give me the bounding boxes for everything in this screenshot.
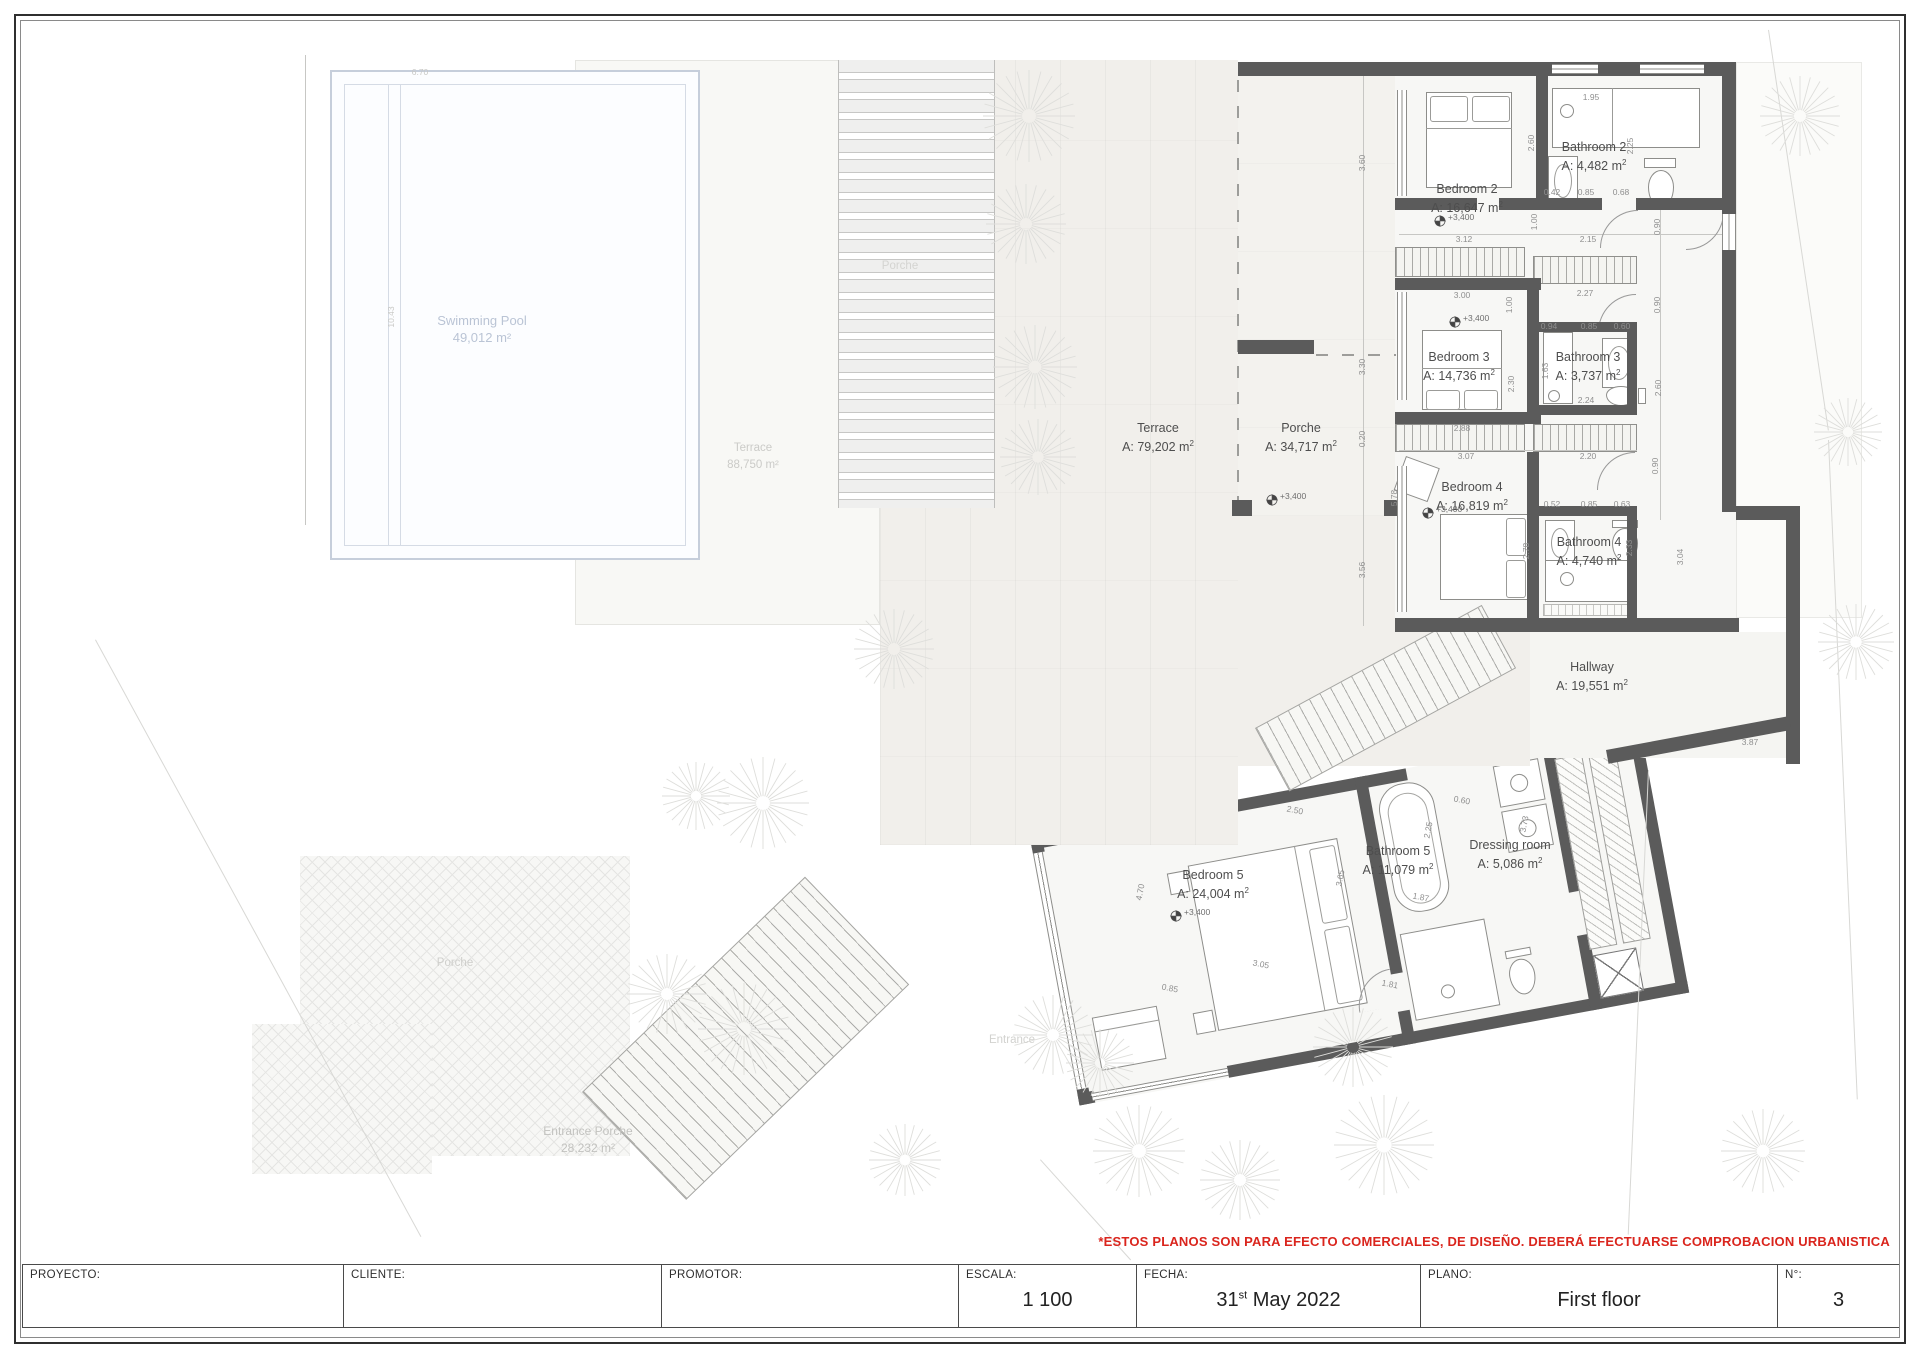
dimension-label: 2.60: [1526, 135, 1536, 152]
level-marker: +3,400: [1422, 506, 1434, 524]
fecha-label: FECHA:: [1144, 1269, 1188, 1281]
titleblock-cliente: CLIENTE:: [344, 1265, 662, 1327]
room-label-bedroom-3: Bedroom 3A: 14,736 m2: [1423, 349, 1495, 384]
titleblock-numero: N°: 3: [1778, 1265, 1899, 1327]
dimension-label: 0.90: [1650, 458, 1660, 475]
titleblock-plano: PLANO: First floor: [1421, 1265, 1778, 1327]
dimension-label: 3.05: [1252, 958, 1270, 971]
dimension-label: 2.25: [1422, 821, 1435, 839]
area-label-terrace: Terrace88,750 m²: [727, 440, 779, 474]
dimension-label: 2.78: [1521, 543, 1531, 560]
labels-layer: Bedroom 2A: 16,647 m2Bathroom 2A: 4,482 …: [0, 0, 1920, 1358]
dimension-label: 0.52: [1544, 499, 1561, 509]
dimension-label: 2.20: [1580, 451, 1597, 461]
dimension-label: 3.56: [1357, 562, 1367, 579]
room-label-bedroom-5: Bedroom 5A: 24,004 m2: [1177, 867, 1249, 902]
dimension-label: 2.27: [1577, 288, 1594, 298]
level-marker: +3,400: [1449, 315, 1461, 333]
dimension-label: 0.60: [1614, 321, 1631, 331]
dimension-label: 0.94: [1541, 321, 1558, 331]
dimension-label: 0.90: [1652, 297, 1662, 314]
dimension-label: 2.15: [1580, 234, 1597, 244]
room-label-hallway: HallwayA: 19,551 m2: [1556, 659, 1628, 694]
proyecto-label: PROYECTO:: [30, 1269, 100, 1281]
room-label-terrace: TerraceA: 79,202 m2: [1122, 420, 1194, 455]
dimension-label: 2.30: [1506, 376, 1516, 393]
dimension-label: 0.85: [1578, 187, 1595, 197]
plano-label: PLANO:: [1428, 1269, 1472, 1281]
dimension-label: 3.30: [1357, 359, 1367, 376]
dimension-label: 1.95: [1583, 92, 1600, 102]
dimension-label: 3.87: [1742, 737, 1759, 747]
cliente-label: CLIENTE:: [351, 1269, 405, 1281]
dimension-label: 1.81: [1381, 978, 1399, 991]
dimension-label: 0.85: [1581, 321, 1598, 331]
titleblock-escala: ESCALA: 1 100: [959, 1265, 1137, 1327]
area-label-porche: Porche: [882, 258, 918, 275]
room-label-bathroom-3: Bathroom 3A: 3,737 m2: [1556, 349, 1621, 384]
dimension-label: 3.73: [1518, 815, 1531, 833]
titleblock-fecha: FECHA: 31st May 2022: [1137, 1265, 1421, 1327]
dimension-label: 0.63: [1614, 499, 1631, 509]
dimension-label: 3.04: [1675, 549, 1685, 566]
area-label-entrance: Entrance: [989, 1032, 1035, 1049]
dimension-label: 0.20: [1357, 431, 1367, 448]
dimension-label: 2.50: [1286, 804, 1304, 817]
room-label-porche: PorcheA: 34,717 m2: [1265, 420, 1337, 455]
dimension-label: 3.12: [1456, 234, 1473, 244]
dimension-label: 1.00: [1529, 214, 1539, 231]
promotor-label: PROMOTOR:: [669, 1269, 742, 1281]
dimension-label: 0.85: [1161, 982, 1179, 995]
area-label-swimming-pool: Swimming Pool49,012 m²: [437, 312, 527, 346]
fecha-value: 31st May 2022: [1137, 1289, 1420, 1312]
dimension-label: 0.42: [1544, 187, 1561, 197]
dimension-label: 5.78: [1389, 490, 1399, 507]
level-marker: +3,400: [1170, 909, 1182, 927]
room-label-bathroom-4: Bathroom 4A: 4,740 m2: [1557, 534, 1622, 569]
dimension-label: 2.25: [1625, 138, 1635, 155]
room-label-bathroom-5: Bathroom 5A: 11,079 m2: [1363, 843, 1434, 878]
dimension-label: 3.60: [1357, 155, 1367, 172]
plano-value: First floor: [1421, 1289, 1777, 1312]
floor-plan-sheet: Bedroom 2A: 16,647 m2Bathroom 2A: 4,482 …: [0, 0, 1920, 1358]
room-label-bedroom-2: Bedroom 2A: 16,647 m2: [1431, 181, 1503, 216]
level-marker: +3,400: [1434, 214, 1446, 232]
disclaimer-text: *ESTOS PLANOS SON PARA EFECTO COMERCIALE…: [1098, 1234, 1890, 1249]
dimension-label: 3.65: [1334, 869, 1347, 887]
dimension-label: 0.68: [1613, 187, 1630, 197]
dimension-label: 0.85: [1581, 499, 1598, 509]
room-label-bathroom-2: Bathroom 2A: 4,482 m2: [1562, 139, 1627, 174]
titleblock-promotor: PROMOTOR:: [662, 1265, 959, 1327]
dimension-label: 2.33: [1624, 540, 1634, 557]
titleblock-proyecto: PROYECTO:: [23, 1265, 344, 1327]
area-label-porche: Porche: [437, 955, 473, 972]
area-label-entrance-porche: Entrance Porche28,232 m²: [543, 1123, 632, 1157]
dimension-label: 1.63: [1540, 363, 1550, 380]
dimension-label: 3.00: [1454, 290, 1471, 300]
escala-label: ESCALA:: [966, 1269, 1017, 1281]
dimension-label: 2.88: [1454, 423, 1471, 433]
numero-value: 3: [1778, 1289, 1899, 1312]
dimension-label: 0.90: [1652, 219, 1662, 236]
dimension-label: 1.00: [1504, 297, 1514, 314]
dimension-label: 4.70: [1134, 883, 1147, 901]
dimension-label: 2.24: [1578, 395, 1595, 405]
dimension-label: 10.43: [386, 306, 396, 327]
level-marker: +3,400: [1266, 493, 1278, 511]
room-label-dressing-room: Dressing roomA: 5,086 m2: [1469, 837, 1550, 872]
dimension-label: 1.87: [1412, 891, 1430, 904]
dimension-label: 0.60: [1453, 794, 1471, 807]
dimension-label: 3.07: [1458, 451, 1475, 461]
escala-value: 1 100: [959, 1289, 1136, 1312]
dimension-label: 6.70: [412, 67, 429, 77]
dimension-label: 2.60: [1653, 380, 1663, 397]
numero-label: N°:: [1785, 1269, 1802, 1281]
title-block: PROYECTO: CLIENTE: PROMOTOR: ESCALA: 1 1…: [22, 1264, 1900, 1328]
